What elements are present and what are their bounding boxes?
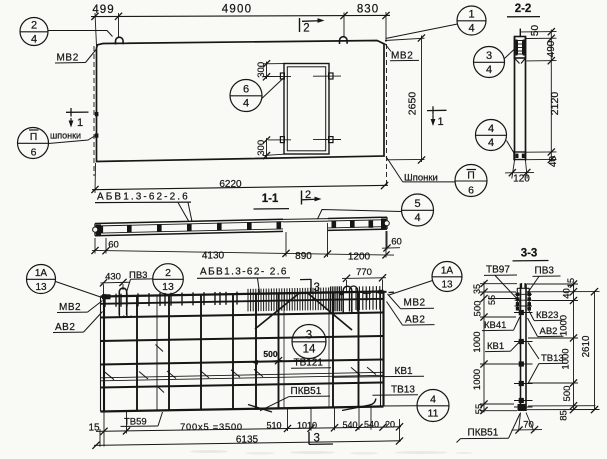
svg-text:70: 70 (523, 420, 534, 431)
svg-text:6: 6 (468, 185, 474, 197)
svg-text:300: 300 (256, 140, 267, 156)
svg-text:15: 15 (566, 278, 576, 288)
svg-text:шпонки: шпонки (50, 131, 81, 141)
svg-text:540: 540 (364, 420, 379, 430)
svg-text:КВ1: КВ1 (487, 341, 504, 352)
svg-text:500: 500 (263, 349, 277, 359)
svg-text:4: 4 (468, 23, 474, 35)
svg-text:АВ2: АВ2 (55, 322, 75, 333)
svg-text:4: 4 (488, 137, 494, 149)
svg-text:1: 1 (468, 8, 474, 20)
svg-text:14: 14 (303, 344, 316, 356)
svg-text:МВ2: МВ2 (59, 302, 81, 313)
svg-text:2650: 2650 (407, 92, 419, 116)
svg-text:КВ41: КВ41 (484, 320, 506, 331)
svg-text:6135: 6135 (236, 435, 259, 446)
svg-text:1010: 1010 (297, 420, 317, 430)
svg-text:1-1: 1-1 (262, 193, 279, 205)
svg-text:430: 430 (105, 271, 121, 282)
svg-text:АВ2: АВ2 (405, 315, 425, 326)
svg-text:ПКВ51: ПКВ51 (468, 428, 499, 439)
svg-text:2: 2 (303, 23, 309, 35)
svg-text:50: 50 (530, 25, 541, 37)
svg-text:60: 60 (391, 237, 402, 248)
svg-text:6: 6 (243, 83, 249, 95)
svg-text:4130: 4130 (202, 251, 225, 262)
svg-text:2-2: 2-2 (515, 3, 532, 15)
svg-text:4: 4 (414, 212, 420, 224)
svg-text:2610: 2610 (581, 335, 592, 357)
svg-text:13: 13 (441, 280, 453, 291)
svg-text:510: 510 (266, 421, 281, 431)
svg-text:1А: 1А (441, 265, 454, 276)
svg-text:20: 20 (385, 419, 395, 429)
svg-text:6220: 6220 (219, 179, 242, 190)
svg-text:4: 4 (31, 34, 37, 46)
svg-text:ТВ121: ТВ121 (294, 358, 324, 369)
svg-text:13: 13 (162, 281, 174, 293)
svg-text:500: 500 (473, 301, 484, 317)
svg-text:КВ1: КВ1 (395, 366, 413, 377)
svg-text:2120: 2120 (549, 92, 561, 116)
svg-text:1: 1 (438, 116, 444, 128)
svg-text:5: 5 (414, 198, 420, 210)
svg-text:13: 13 (35, 282, 47, 293)
svg-text:4: 4 (486, 64, 492, 76)
svg-text:3: 3 (306, 329, 312, 341)
svg-text:4900: 4900 (222, 4, 252, 16)
svg-text:ТВ13: ТВ13 (541, 353, 564, 364)
svg-text:АВ2: АВ2 (540, 326, 558, 337)
svg-text:830: 830 (357, 4, 379, 16)
svg-text:АБВ1.3-62-2.6: АБВ1.3-62-2.6 (97, 192, 190, 203)
svg-text:КВ23: КВ23 (536, 310, 558, 321)
svg-text:60: 60 (108, 240, 119, 251)
svg-text:4: 4 (488, 123, 494, 135)
svg-text:120: 120 (513, 174, 530, 185)
svg-text:490: 490 (546, 40, 557, 57)
svg-text:АБВ1.3-62- 2.6: АБВ1.3-62- 2.6 (200, 267, 288, 278)
svg-text:300: 300 (256, 62, 267, 78)
svg-text:4: 4 (243, 98, 249, 110)
svg-text:П: П (30, 131, 38, 143)
svg-text:499: 499 (92, 4, 114, 16)
svg-text:1000: 1000 (559, 315, 570, 336)
svg-text:4: 4 (430, 393, 436, 405)
svg-text:1000: 1000 (472, 369, 483, 390)
svg-text:МВ2: МВ2 (57, 53, 79, 64)
svg-text:ТВ13: ТВ13 (391, 385, 415, 396)
svg-text:700х5 =3500: 700х5 =3500 (180, 422, 243, 432)
svg-text:770: 770 (356, 267, 372, 278)
svg-text:МВ2: МВ2 (391, 51, 413, 62)
svg-text:1000: 1000 (472, 331, 483, 352)
svg-text:6: 6 (31, 147, 37, 159)
svg-text:40: 40 (562, 288, 573, 299)
svg-text:1200: 1200 (348, 252, 371, 263)
svg-text:55: 55 (474, 404, 485, 415)
svg-text:3: 3 (314, 433, 320, 445)
svg-text:МВ2: МВ2 (404, 298, 426, 309)
svg-text:П: П (467, 170, 475, 182)
svg-text:55: 55 (487, 295, 497, 305)
svg-text:1А: 1А (35, 268, 48, 279)
svg-text:540: 540 (342, 420, 357, 430)
svg-text:2: 2 (31, 19, 37, 31)
svg-text:ТВ97: ТВ97 (486, 265, 510, 276)
svg-text:40: 40 (548, 156, 559, 168)
svg-text:ПВ3: ПВ3 (535, 266, 555, 277)
svg-text:85: 85 (559, 410, 570, 421)
svg-text:1: 1 (77, 117, 83, 129)
svg-text:3: 3 (486, 50, 492, 62)
svg-text:2: 2 (165, 267, 171, 279)
svg-text:ПКВ51: ПКВ51 (291, 386, 322, 397)
svg-text:890: 890 (295, 251, 312, 262)
svg-text:35: 35 (472, 284, 482, 294)
svg-text:11: 11 (428, 408, 439, 420)
svg-text:3-3: 3-3 (521, 248, 538, 260)
svg-text:500: 500 (562, 386, 573, 402)
svg-text:3: 3 (314, 282, 320, 294)
svg-text:Шпонки: Шпонки (404, 172, 438, 183)
